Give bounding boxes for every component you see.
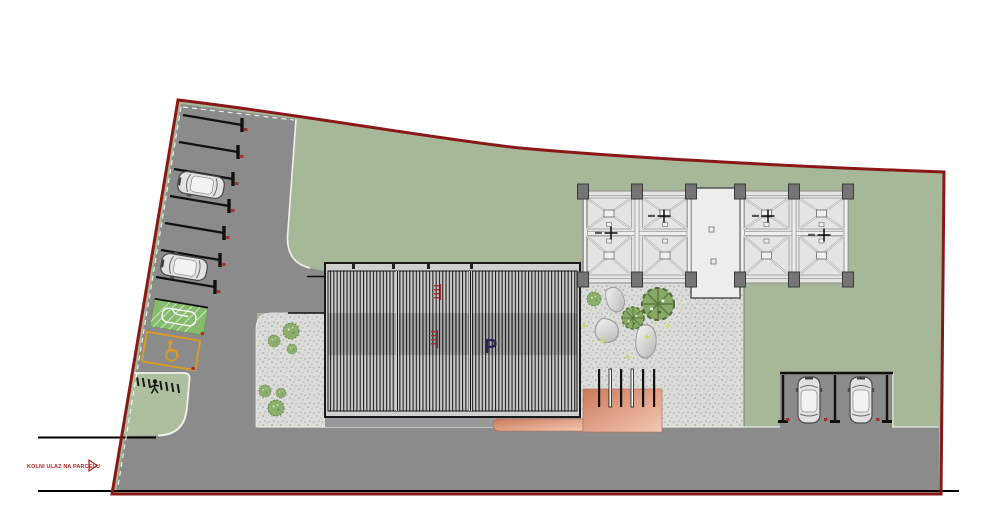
main-building: P [325, 263, 580, 417]
pergola-column [686, 184, 697, 199]
site-plan-canvas: P [0, 0, 1004, 513]
pergola-column [735, 184, 746, 199]
pergola-column [843, 184, 854, 199]
roof-band [328, 313, 577, 355]
bush-icon [587, 292, 601, 306]
pergola-group-b [735, 184, 854, 287]
bush-icon [283, 323, 299, 339]
pergola-column [686, 272, 697, 287]
car-icon [796, 377, 822, 423]
bush-icon [259, 385, 271, 397]
tree-icon [622, 307, 644, 329]
building-level-label: P [484, 336, 497, 358]
bush-icon [276, 388, 286, 398]
tree-icon [642, 288, 674, 320]
pergola-column [735, 272, 746, 287]
pergola-column [843, 272, 854, 287]
bush-icon [268, 335, 280, 347]
walkway [691, 188, 740, 298]
bush-icon [268, 400, 284, 416]
pergola-column [789, 184, 800, 199]
pergola-group-a [578, 184, 697, 287]
pergola-column [632, 184, 643, 199]
site-plan-drawing: P [0, 0, 1004, 513]
pergola-column [789, 272, 800, 287]
bush-icon [287, 344, 297, 354]
pergola-column [578, 272, 589, 287]
guest-parking-stalls [778, 373, 893, 428]
pergola-column [578, 184, 589, 199]
pergola-column [632, 272, 643, 287]
car-icon [848, 377, 874, 423]
